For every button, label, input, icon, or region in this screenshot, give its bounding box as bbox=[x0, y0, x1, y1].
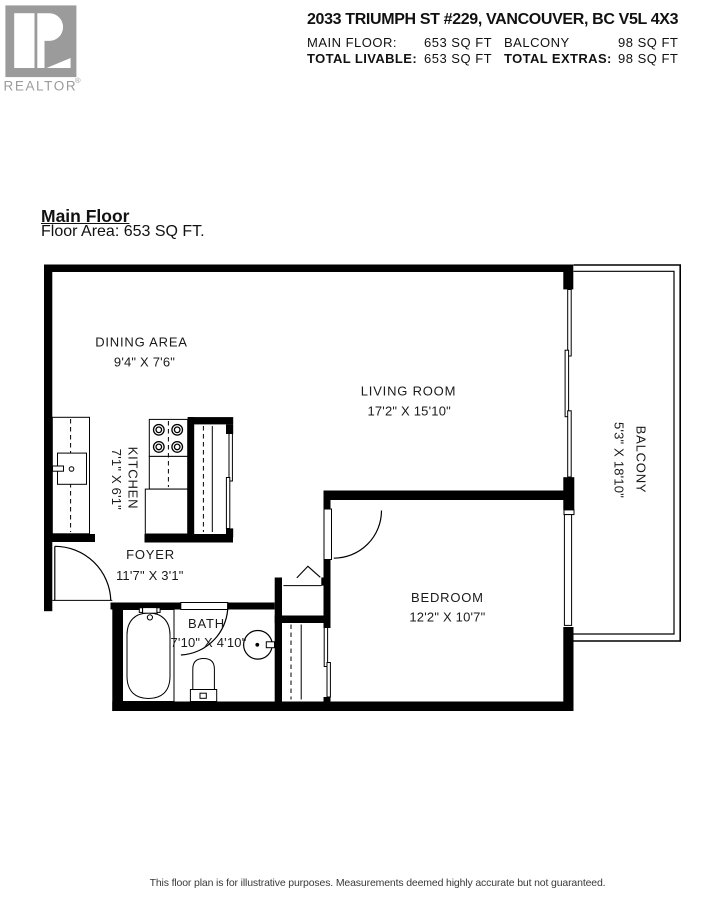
svg-text:KITCHEN: KITCHEN bbox=[125, 447, 140, 510]
svg-text:DINING AREA: DINING AREA bbox=[95, 335, 188, 350]
svg-text:11'7" X 3'1": 11'7" X 3'1" bbox=[116, 568, 184, 583]
svg-text:17'2" X 15'10": 17'2" X 15'10" bbox=[367, 404, 451, 419]
svg-text:LIVING ROOM: LIVING ROOM bbox=[361, 384, 456, 399]
svg-text:7'1" X 6'1": 7'1" X 6'1" bbox=[109, 449, 124, 510]
svg-text:BALCONY: BALCONY bbox=[634, 426, 649, 494]
svg-text:BATH: BATH bbox=[188, 616, 225, 631]
svg-text:9'4" X 7'6": 9'4" X 7'6" bbox=[114, 355, 175, 370]
svg-text:FOYER: FOYER bbox=[126, 547, 175, 562]
svg-text:12'2" X 10'7": 12'2" X 10'7" bbox=[409, 610, 485, 625]
svg-text:5'3" X 18'10": 5'3" X 18'10" bbox=[612, 422, 627, 498]
svg-text:BEDROOM: BEDROOM bbox=[411, 590, 484, 605]
svg-text:7'10" X 4'10": 7'10" X 4'10" bbox=[170, 635, 246, 650]
